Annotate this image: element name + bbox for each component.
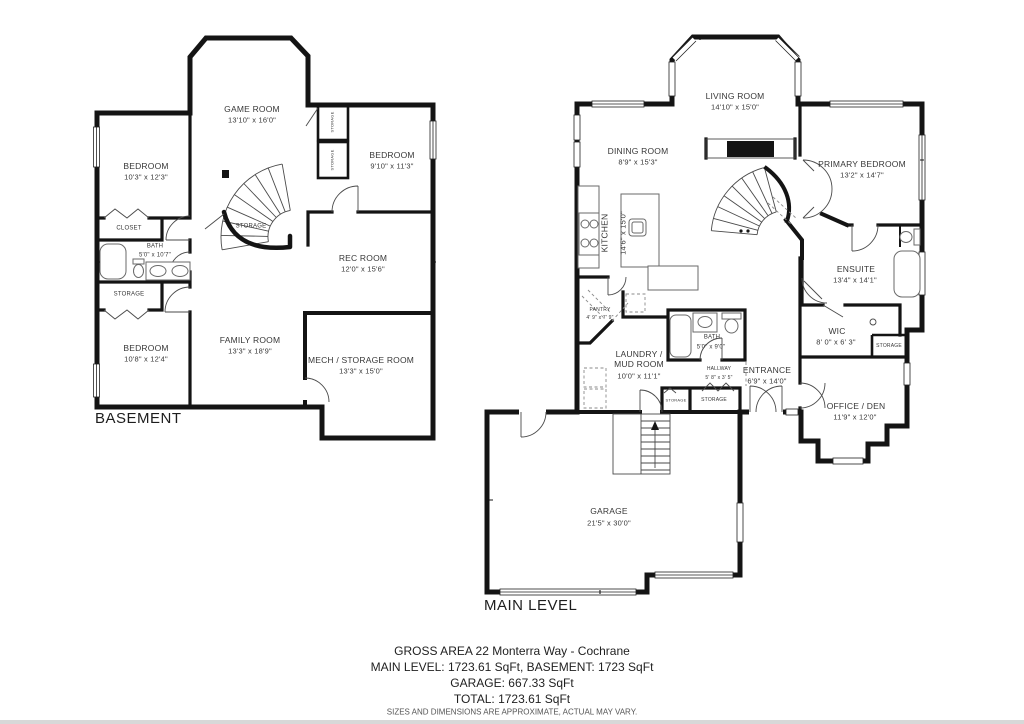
basement-mech-room-dims: 13'3" x 15'0" bbox=[339, 368, 383, 377]
dining-room-dims: 8'9" x 15'3" bbox=[618, 159, 657, 168]
office-den-dims: 11'9" x 12'0" bbox=[833, 414, 876, 423]
basement-post bbox=[222, 170, 229, 178]
basement-storage-closet-a-label: STORAGE bbox=[331, 112, 336, 133]
hallway-dims: 5' 8" x 3' 5" bbox=[705, 376, 732, 382]
hall-storage-small-label: STORAGE bbox=[666, 399, 687, 404]
basement-outer-walls bbox=[97, 38, 433, 438]
wic-storage-label: STORAGE bbox=[876, 344, 902, 350]
footer-gross-area: GROSS AREA 22 Monterra Way - Cochrane bbox=[394, 644, 630, 658]
basement-bath-label: BATH bbox=[147, 244, 163, 251]
pantry-label: PANTRY bbox=[589, 308, 610, 314]
basement-bedroom3-dims: 10'8" x 12'4" bbox=[124, 356, 168, 365]
basement-game-room-label: GAME ROOM bbox=[224, 105, 280, 115]
kitchen-label: KITCHEN bbox=[600, 214, 610, 253]
garage-label: GARAGE bbox=[590, 507, 628, 517]
basement-storage-left-label: STORAGE bbox=[114, 292, 145, 299]
garage-stairs bbox=[613, 414, 670, 474]
basement-plan bbox=[94, 36, 437, 438]
wic-label: WIC bbox=[828, 327, 845, 337]
laundry-dims: 10'0" x 11'1" bbox=[617, 373, 660, 382]
ensuite-label: ENSUITE bbox=[837, 265, 875, 275]
garage-dims: 21'5" x 30'0" bbox=[587, 520, 631, 529]
primary-bedroom-dims: 13'2" x 14'7" bbox=[840, 172, 884, 181]
basement-game-room-dims: 13'10" x 16'0" bbox=[228, 117, 276, 126]
basement-storage-closet-b-label: STORAGE bbox=[331, 150, 336, 171]
main-level-title: MAIN LEVEL bbox=[484, 597, 577, 614]
hall-storage-label: STORAGE bbox=[701, 398, 727, 404]
main-bath-dims: 5'0" x 9'0" bbox=[697, 345, 725, 352]
basement-fixtures bbox=[100, 244, 190, 280]
basement-family-room-dims: 13'3" x 18'9" bbox=[228, 348, 272, 357]
basement-stairs bbox=[205, 164, 290, 250]
basement-bedroom3-label: BEDROOM bbox=[123, 344, 168, 354]
footer-total-area: TOTAL: 1723.61 SqFt bbox=[454, 692, 570, 706]
basement-storage-under-stairs-label: STORAGE bbox=[236, 224, 267, 231]
ensuite-dims: 13'4" x 14'1" bbox=[833, 277, 877, 286]
hallway-label: HALLWAY bbox=[707, 367, 731, 373]
laundry-label: LAUNDRY / MUD ROOM bbox=[611, 350, 667, 370]
main-doors bbox=[519, 160, 878, 437]
basement-rec-room-label: REC ROOM bbox=[339, 254, 387, 264]
basement-rec-room-dims: 12'0" x 15'6" bbox=[341, 266, 385, 275]
main-level-plan bbox=[487, 36, 925, 595]
basement-bedroom2-label: BEDROOM bbox=[369, 151, 414, 161]
basement-bedroom1-dims: 10'3" x 12'3" bbox=[124, 174, 168, 183]
basement-title: BASEMENT bbox=[95, 410, 182, 427]
footer-garage-area: GARAGE: 667.33 SqFt bbox=[450, 676, 573, 690]
office-den-label: OFFICE / DEN bbox=[827, 402, 886, 412]
floor-plan-page: GAME ROOM 13'10" x 16'0" BEDROOM 10'3" x… bbox=[0, 0, 1024, 724]
basement-bedroom1-label: BEDROOM bbox=[123, 162, 168, 172]
living-room-dims: 14'10" x 15'0" bbox=[711, 104, 759, 113]
basement-closet-label: CLOSET bbox=[116, 226, 141, 233]
primary-bedroom-label: PRIMARY BEDROOM bbox=[818, 160, 906, 170]
footer-main-basement-area: MAIN LEVEL: 1723.61 SqFt, BASEMENT: 1723… bbox=[371, 660, 654, 674]
pantry-dims: 4' 9" x 7' 9" bbox=[586, 316, 613, 322]
fireplace bbox=[706, 139, 795, 158]
kitchen-dims: 14'6" x 15'0" bbox=[619, 211, 628, 255]
footer-disclaimer: SIZES AND DIMENSIONS ARE APPROXIMATE, AC… bbox=[387, 708, 637, 717]
kitchen-label-group: KITCHEN14'6" x 15'0" bbox=[595, 211, 632, 255]
entrance-label: ENTRANCE bbox=[743, 366, 791, 376]
bottom-edge-strip bbox=[0, 720, 1024, 724]
basement-family-room-label: FAMILY ROOM bbox=[220, 336, 280, 346]
stairs-up-arrow-icon bbox=[651, 421, 659, 430]
basement-bedroom2-dims: 9'10" x 11'3" bbox=[370, 163, 413, 172]
basement-bath-dims: 5'0" x 10'7" bbox=[139, 253, 171, 260]
wic-dims: 8' 0" x 6' 3" bbox=[816, 339, 856, 348]
dining-room-label: DINING ROOM bbox=[608, 147, 669, 157]
living-room-label: LIVING ROOM bbox=[706, 92, 765, 102]
basement-mech-room-label: MECH / STORAGE ROOM bbox=[308, 356, 414, 366]
entrance-dims: 6'9" x 14'0" bbox=[747, 378, 786, 387]
main-bath-label: BATH bbox=[704, 335, 720, 342]
